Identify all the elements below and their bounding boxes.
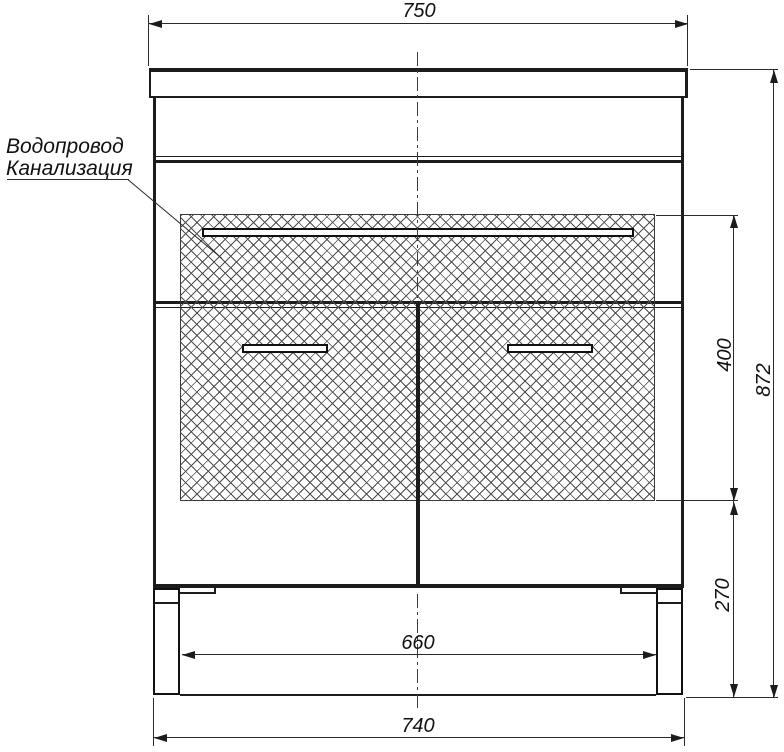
right-leg-bracket-line [657,602,682,604]
dim-872-arrow-bottom [770,685,778,698]
dim-660-label: 660 [338,633,498,653]
dim-872-label: 872 [754,340,774,420]
dim-400-ext-top [656,215,738,216]
water-supply-label: Водопровод [6,136,124,157]
plinth-notch-left-h [180,592,216,594]
left-leg-bracket-line [154,602,179,604]
plinth-bottom-line [180,694,656,696]
door-gap [416,304,420,586]
dim-740-arrow-left [154,734,167,742]
dim-660-arrow-right [643,651,656,659]
dim-740-ext-right [684,698,685,746]
top-rail-line-thin [153,156,684,157]
plinth-notch-left-v [214,588,216,594]
centerline-upper [417,52,418,303]
countertop-right-edge [685,68,688,98]
dim-750-line [149,23,688,24]
plinth-notch-right-h [620,592,657,594]
dim-740-line [154,737,684,738]
countertop-left-edge [149,68,151,98]
vanity-technical-drawing: 750 872 400 270 660 740 Водопровод Канал… [0,0,784,752]
left-door-handle [242,344,328,353]
dim-660-arrow-left [182,651,195,659]
dim-872-ext-top [690,69,778,70]
right-leg [656,588,683,695]
dim-872-ext-bottom [686,697,778,698]
dim-872-arrow-top [770,70,778,83]
dim-400-ext-mid [656,500,738,501]
sewerage-label: Канализация [6,158,133,179]
dim-400-arrow-bottom [730,488,738,501]
cabinet-left-side [153,97,156,588]
dim-660-line [182,654,656,655]
dim-270-label: 270 [713,555,733,635]
drawer-handle [202,228,634,237]
dim-750-label: 750 [339,1,499,21]
dim-740-arrow-right [671,734,684,742]
dim-740-label: 740 [338,716,498,736]
top-rail-line-thick [153,160,684,163]
dim-270-arrow-top [730,502,738,515]
left-leg [153,588,180,695]
dim-270-arrow-bottom [730,684,738,697]
right-door-handle [507,344,593,353]
dim-400-arrow-top [730,215,738,228]
countertop-bottom-edge [149,96,688,98]
cabinet-right-side [681,97,684,588]
plinth-notch-right-v [620,588,622,594]
dim-750-arrow-right [675,20,688,28]
leader-underline [7,179,129,180]
dim-750-arrow-left [149,20,162,28]
dim-400-label: 400 [715,315,735,395]
countertop-top-edge [149,68,688,72]
